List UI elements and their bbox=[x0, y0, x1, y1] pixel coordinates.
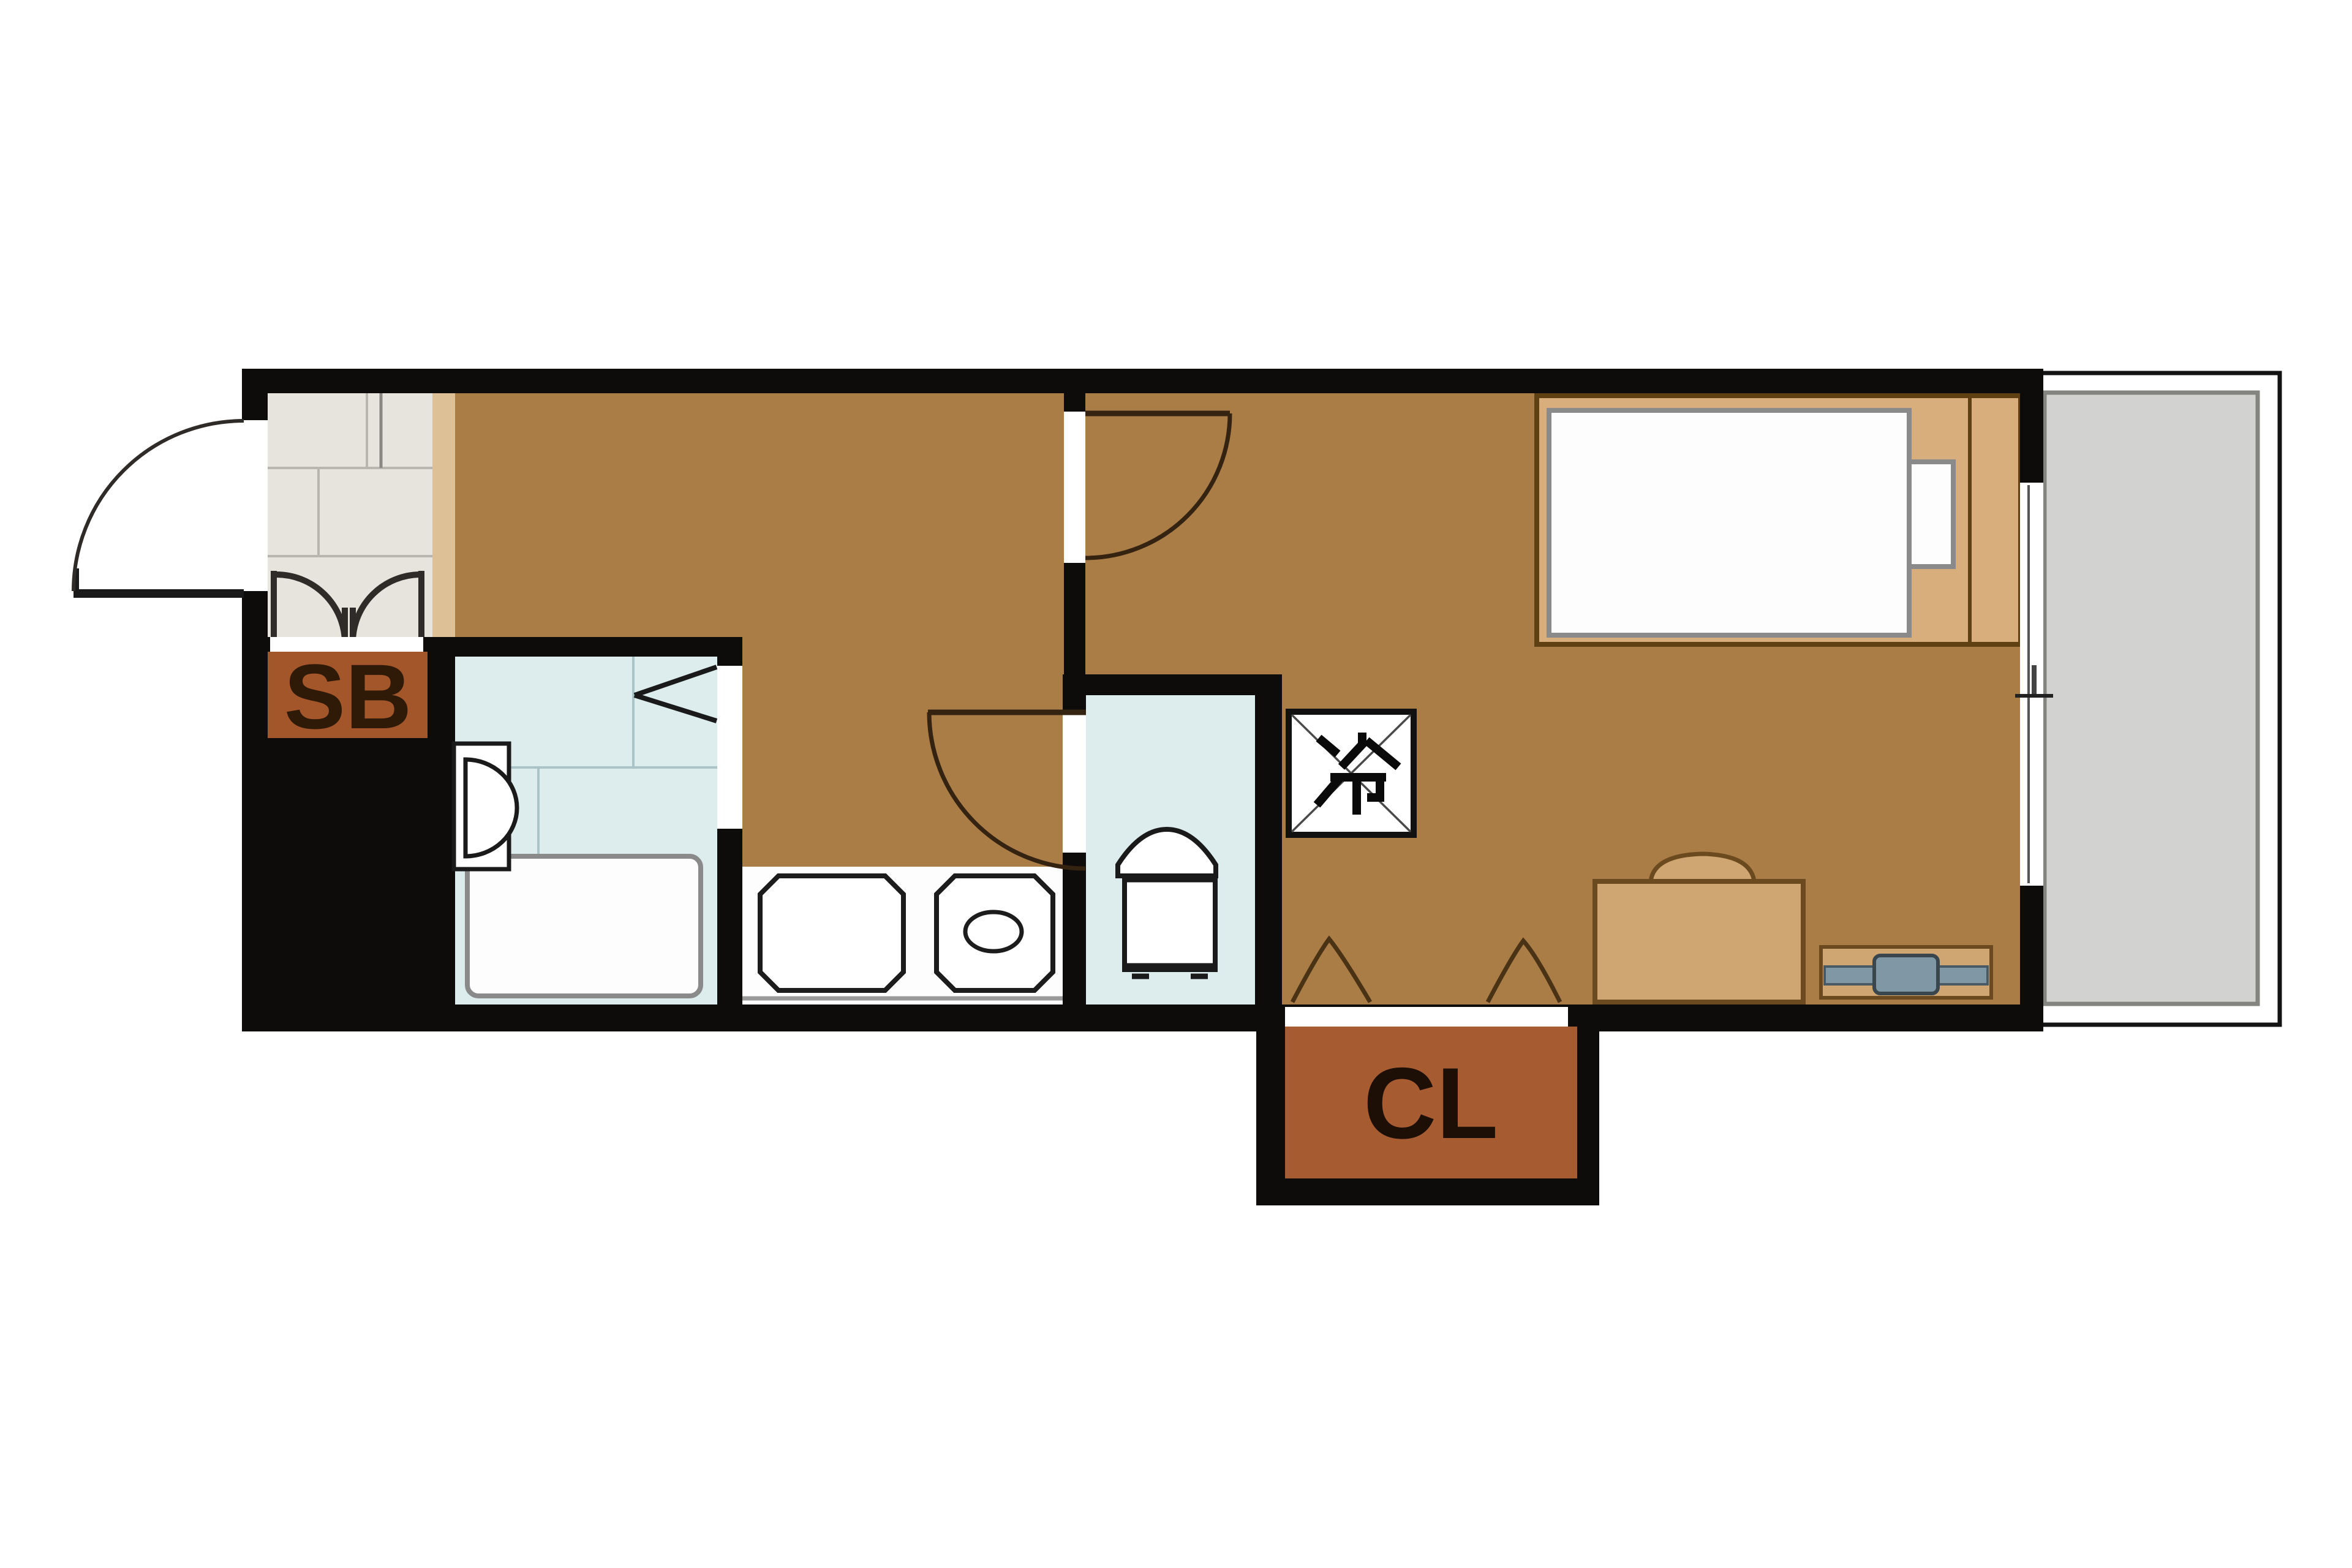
svg-text:CL: CL bbox=[1363, 1047, 1498, 1159]
svg-text:SB: SB bbox=[284, 645, 412, 748]
